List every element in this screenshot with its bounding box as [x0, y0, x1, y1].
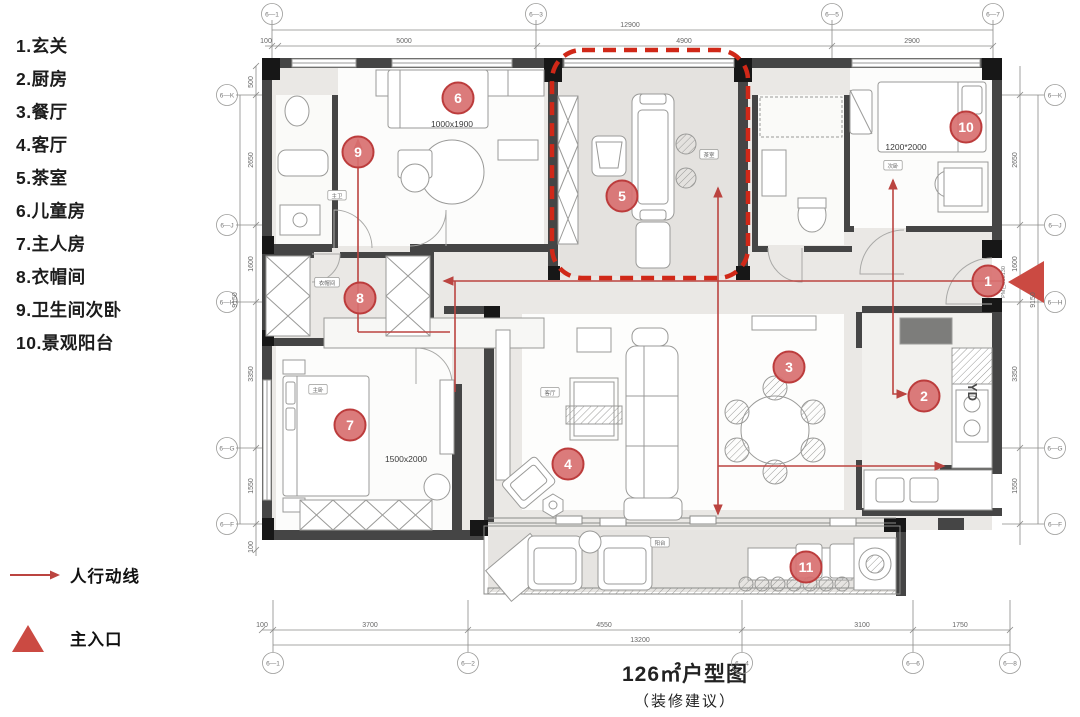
- grid-bubble-label: 6—J: [1048, 222, 1061, 229]
- grid-bubble-label: 6—K: [220, 92, 235, 99]
- dim-500: 500: [248, 76, 255, 88]
- floor-plan: 6—16—36—56—76—16—26—46—66—86—K6—J6—H6—G6…: [0, 0, 1080, 717]
- room-marker-number: 2: [920, 388, 928, 404]
- dim-2900: 2900: [904, 38, 920, 45]
- room-tag-label: 主卧: [312, 386, 324, 394]
- dim-3700: 3700: [362, 622, 378, 629]
- dim-1600: 1600: [1012, 256, 1019, 272]
- grid-bubble-label: 6—3: [529, 11, 543, 18]
- room-marker-number: 10: [958, 119, 974, 135]
- dim-100: 100: [260, 38, 272, 45]
- dim-1550: 1550: [248, 478, 255, 494]
- dim-12900: 12900: [620, 22, 640, 29]
- room-marker-number: 8: [356, 290, 364, 306]
- grid-bubble-label: 6—G: [219, 445, 234, 452]
- grid-bubble-label: 6—H: [1048, 299, 1063, 306]
- grid-bubble-label: 6—6: [906, 660, 920, 667]
- dim-4550: 4550: [596, 622, 612, 629]
- dim-13200: 13200: [630, 637, 650, 644]
- room-tag-label: 阳台: [654, 539, 666, 547]
- yd-label: YD: [965, 383, 980, 401]
- room-tag-label: 客厅: [544, 389, 556, 397]
- room-marker-number: 9: [354, 144, 362, 160]
- room-marker-number: 7: [346, 417, 354, 433]
- grid-bubble-label: 6—F: [220, 521, 234, 528]
- size-label: 1000x1900: [431, 119, 473, 129]
- dim-4900: 4900: [676, 38, 692, 45]
- grid-bubble-label: 6—F: [1048, 521, 1062, 528]
- grid-bubble-label: 6—8: [1003, 660, 1017, 667]
- dim-3350: 3350: [1012, 366, 1019, 382]
- grid-bubble-label: 6—1: [266, 660, 280, 667]
- room-tag-label: 主卫: [331, 192, 343, 200]
- dim-1600: 1600: [248, 256, 255, 272]
- room-tag-label: 衣帽间: [319, 279, 336, 287]
- grid-bubble-label: 6—G: [1047, 445, 1062, 452]
- dim-9150: 9150: [1030, 292, 1037, 308]
- room-marker-number: 4: [564, 456, 572, 472]
- grid-bubble-label: 6—5: [825, 11, 839, 18]
- room-marker-number: 5: [618, 188, 626, 204]
- dim-2650: 2650: [1012, 152, 1019, 168]
- room-marker-number: 11: [799, 559, 814, 575]
- grid-bubble-label: 6—7: [986, 11, 1000, 18]
- room-marker-number: 3: [785, 359, 793, 375]
- dim-1750: 1750: [952, 622, 968, 629]
- grid-bubble-label: 6—1: [265, 11, 279, 18]
- room-tag-label: 茶室: [703, 151, 715, 159]
- size-label: 1500x2000: [385, 454, 427, 464]
- dim-100: 100: [256, 622, 268, 629]
- dim-100: 100: [248, 541, 255, 553]
- dim-5000: 5000: [396, 38, 412, 45]
- dim-3350: 3350: [248, 366, 255, 382]
- grid-bubble-label: 6—K: [1048, 92, 1063, 99]
- dim-1550: 1550: [1012, 478, 1019, 494]
- dim-2650: 2650: [248, 152, 255, 168]
- size-label: 1200*2000: [885, 142, 926, 152]
- room-marker-number: 6: [454, 90, 462, 106]
- dim-3100: 3100: [854, 622, 870, 629]
- dim-9150: 9150: [232, 292, 239, 308]
- grid-bubble-label: 6—4: [735, 660, 749, 667]
- room-tag-label: 次卧: [887, 162, 899, 170]
- room-marker-number: 1: [984, 273, 992, 289]
- grid-bubble-label: 6—2: [461, 660, 475, 667]
- grid-bubble-label: 6—J: [220, 222, 233, 229]
